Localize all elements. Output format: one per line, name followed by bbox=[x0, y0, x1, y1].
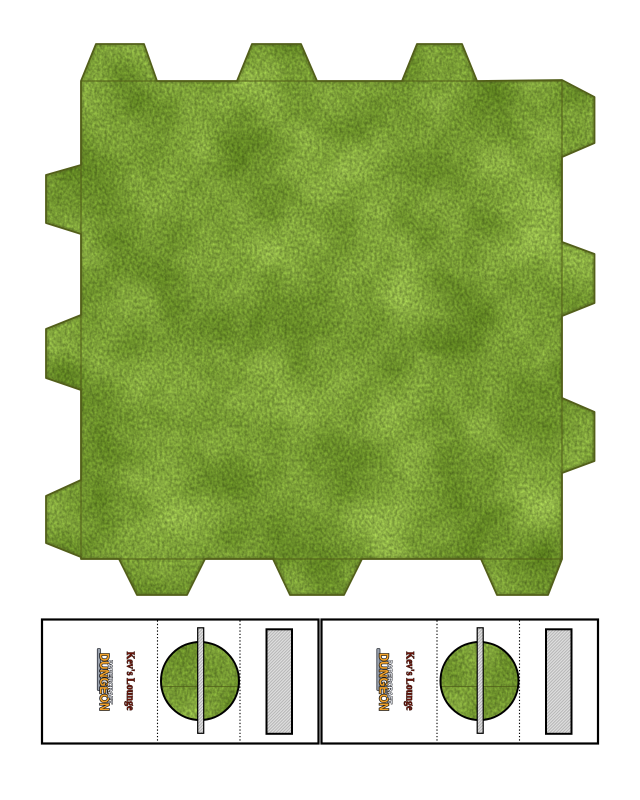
svg-text:Kev's Lounge: Kev's Lounge bbox=[404, 652, 418, 712]
svg-text:PAPERCRAFT: PAPERCRAFT bbox=[386, 660, 392, 704]
svg-text:Kev's Lounge: Kev's Lounge bbox=[124, 652, 138, 712]
svg-text:PAPERCRAFT: PAPERCRAFT bbox=[106, 660, 112, 704]
